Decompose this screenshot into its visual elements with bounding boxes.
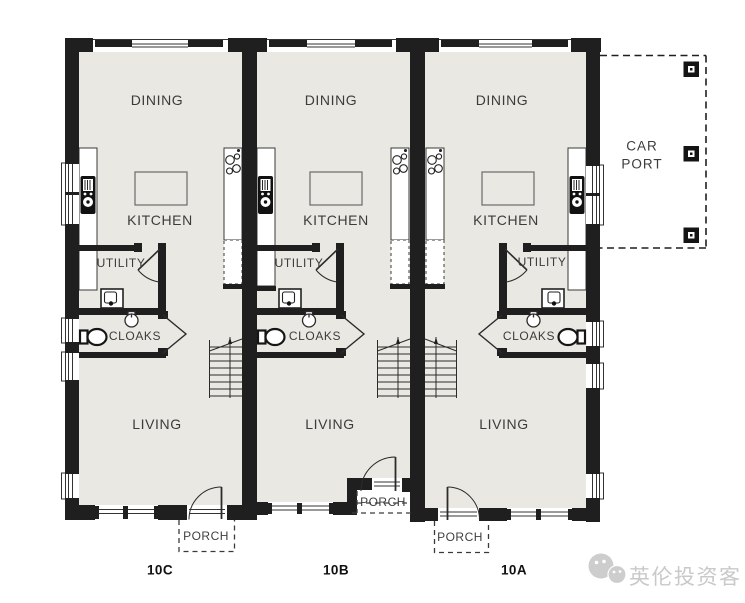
room-label-utility-10b: UTILITY bbox=[275, 257, 324, 269]
floor-plan-page: DINING DINING DINING KITCHEN KITCHEN KIT… bbox=[0, 0, 745, 603]
room-label-kitchen-10a: KITCHEN bbox=[473, 213, 539, 227]
room-label-cloaks-10b: CLOAKS bbox=[289, 330, 341, 342]
room-label-kitchen-10b: KITCHEN bbox=[303, 213, 369, 227]
carport-label: CAR PORT bbox=[615, 137, 669, 172]
room-label-dining-10b: DINING bbox=[305, 93, 358, 107]
floor-plan-svg bbox=[0, 0, 745, 603]
carport-posts bbox=[684, 62, 700, 244]
toilet-icon-10a bbox=[559, 329, 586, 345]
sink-icon-10b bbox=[258, 176, 273, 214]
windows-top bbox=[93, 38, 571, 52]
floor-areas bbox=[79, 52, 586, 515]
watermark-text: 英伦投资客 bbox=[629, 561, 742, 591]
toilet-icon-10c bbox=[80, 329, 107, 345]
room-label-utility-10a: UTILITY bbox=[518, 256, 567, 268]
porch-label-10c: PORCH bbox=[183, 530, 229, 542]
sink-icon-10c bbox=[81, 176, 96, 214]
room-label-utility-10c: UTILITY bbox=[97, 257, 146, 269]
room-label-kitchen-10c: KITCHEN bbox=[127, 213, 193, 227]
watermark-logo-icon bbox=[589, 554, 627, 584]
room-label-cloaks-10a: CLOAKS bbox=[503, 330, 555, 342]
unit-label-10a: 10A bbox=[501, 563, 527, 577]
toilet-icon-10b bbox=[258, 329, 285, 345]
unit-label-10c: 10C bbox=[147, 563, 173, 577]
porch-label-10a: PORCH bbox=[437, 531, 483, 543]
room-label-living-10a: LIVING bbox=[479, 417, 529, 431]
room-label-living-10b: LIVING bbox=[305, 417, 355, 431]
room-label-dining-10c: DINING bbox=[131, 93, 184, 107]
unit-label-10b: 10B bbox=[323, 563, 349, 577]
room-label-living-10c: LIVING bbox=[132, 417, 182, 431]
porch-label-10b: PORCH bbox=[360, 496, 406, 508]
room-label-cloaks-10c: CLOAKS bbox=[109, 330, 161, 342]
sink-icon-10a bbox=[570, 176, 585, 214]
room-label-dining-10a: DINING bbox=[476, 93, 529, 107]
